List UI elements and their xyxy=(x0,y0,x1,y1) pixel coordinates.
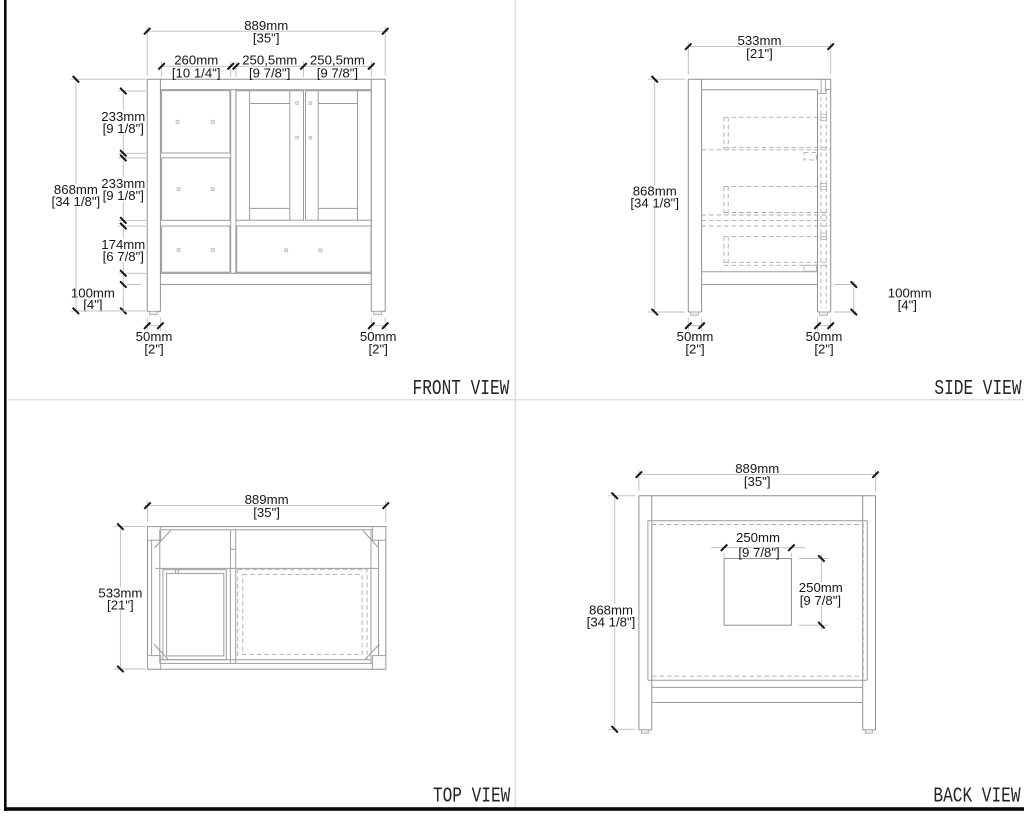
svg-text:[9 7/8"]: [9 7/8"] xyxy=(317,65,358,80)
svg-text:[21"]: [21"] xyxy=(107,597,134,612)
svg-text:TOP VIEW: TOP VIEW xyxy=(433,783,511,808)
svg-text:[2"]: [2"] xyxy=(369,341,388,356)
svg-text:FRONT VIEW: FRONT VIEW xyxy=(413,376,510,401)
svg-text:[2"]: [2"] xyxy=(814,341,833,356)
svg-text:SIDE VIEW: SIDE VIEW xyxy=(934,376,1022,401)
svg-text:[34 1/8"]: [34 1/8"] xyxy=(587,615,636,630)
svg-text:[9 1/8"]: [9 1/8"] xyxy=(103,188,144,203)
svg-text:[9 7/8"]: [9 7/8"] xyxy=(738,545,779,560)
svg-text:250mm: 250mm xyxy=(736,530,780,545)
svg-text:[6 7/8"]: [6 7/8"] xyxy=(103,249,144,264)
svg-text:[35"]: [35"] xyxy=(253,31,280,46)
svg-text:[34 1/8"]: [34 1/8"] xyxy=(630,196,679,211)
svg-text:[21"]: [21"] xyxy=(746,46,773,61)
svg-text:[4"]: [4"] xyxy=(83,297,102,312)
svg-text:[9 7/8"]: [9 7/8"] xyxy=(800,593,841,608)
svg-text:[2"]: [2"] xyxy=(685,341,704,356)
svg-text:BACK VIEW: BACK VIEW xyxy=(933,783,1021,808)
svg-text:[35"]: [35"] xyxy=(744,474,771,489)
svg-text:[34 1/8"]: [34 1/8"] xyxy=(52,194,101,209)
svg-text:[2"]: [2"] xyxy=(144,341,163,356)
svg-text:[35"]: [35"] xyxy=(253,505,280,520)
svg-text:[4"]: [4"] xyxy=(898,298,917,313)
svg-text:[10 1/4"]: [10 1/4"] xyxy=(172,65,221,80)
svg-text:[9 1/8"]: [9 1/8"] xyxy=(103,121,144,136)
svg-text:[9 7/8"]: [9 7/8"] xyxy=(249,65,290,80)
